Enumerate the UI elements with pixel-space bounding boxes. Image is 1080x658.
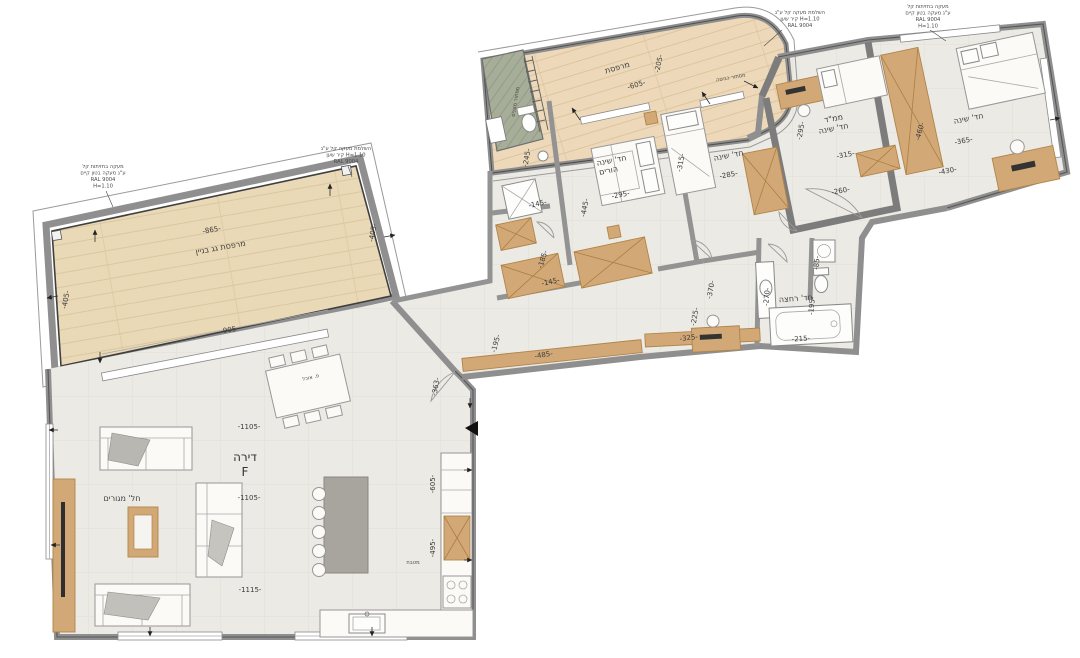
parents-nightstand-2: [607, 225, 621, 239]
note-railing-curve-1: השלמת מעקה קל ע"ג: [775, 10, 825, 16]
coffee-table-top: [134, 515, 152, 549]
note-railing-wing-4: H=1.10: [918, 24, 938, 30]
bathroom-dim-1: -270-: [762, 287, 772, 307]
note-railing-wing-1: מעקה בחזיתות קל: [907, 4, 949, 10]
bathroom-dim-4: -85-: [812, 255, 821, 270]
note-railing-left-4: H=1.10: [93, 184, 113, 190]
note-railing-wing-3: RAL 9004: [916, 17, 941, 23]
note-railing-left-1: מעקה בחזיתות קל: [82, 164, 124, 170]
note-railing-curve-3: RAL 9004: [788, 23, 813, 29]
kitchen-counter-right: [441, 453, 472, 610]
living-dim-1: -1105-: [238, 423, 261, 431]
bathroom-dim-3: -215-: [791, 335, 810, 344]
armchair: [196, 483, 242, 577]
unit-label: דירה: [233, 450, 257, 464]
sofa-bottom: [95, 584, 190, 626]
kitchen-sink: [349, 612, 385, 633]
tv-console: [53, 479, 75, 632]
floor-plan-drawing: -865-מרפסת גג בניין-905--405--405-מעקה ב…: [0, 0, 1080, 658]
sofa-top: [100, 427, 192, 470]
note-railing-left-2: ע"ג מעקה בטון קיים: [80, 171, 125, 177]
living-label: חל' מגורים: [103, 494, 140, 503]
parents-nightstand-1: [644, 111, 658, 125]
kitchen-counter-bottom: [320, 610, 473, 637]
stove: [443, 576, 471, 608]
unit-letter: F: [242, 465, 249, 479]
floor-plan-page: -865-מרפסת גג בניין-905--405--405-מעקה ב…: [0, 0, 1080, 658]
note-railing-curve-2: קיר שען H=1.10: [780, 17, 819, 23]
living-dim-3: -1115-: [239, 586, 262, 594]
kitchen-dim-2: -495-: [429, 538, 437, 557]
note-railing-left-3: RAL 9004: [91, 177, 116, 183]
bathroom-dim-2: -195-: [807, 296, 817, 316]
note-railing-wing-2: ע"ג מעקה בטון קיים: [905, 11, 950, 17]
note-parapet-mid-1: השלמת מעקה קל ע"ג: [321, 146, 371, 152]
note-parapet-mid-2: קיר שען H=1.10: [326, 153, 365, 159]
wing-left-wall: [393, 171, 490, 301]
roof-terrace-post-left: [51, 230, 61, 240]
roof-terrace-post-right: [341, 165, 351, 175]
kitchen-dim-1: -605-: [429, 474, 437, 493]
note-parapet-mid-3: RAL 9004: [334, 159, 359, 165]
living-dim-2: -1105-: [238, 494, 261, 502]
kitchen-label: מטבח: [406, 560, 420, 566]
ensuite-shower: [502, 179, 542, 219]
ensuite-sink: [538, 151, 548, 161]
